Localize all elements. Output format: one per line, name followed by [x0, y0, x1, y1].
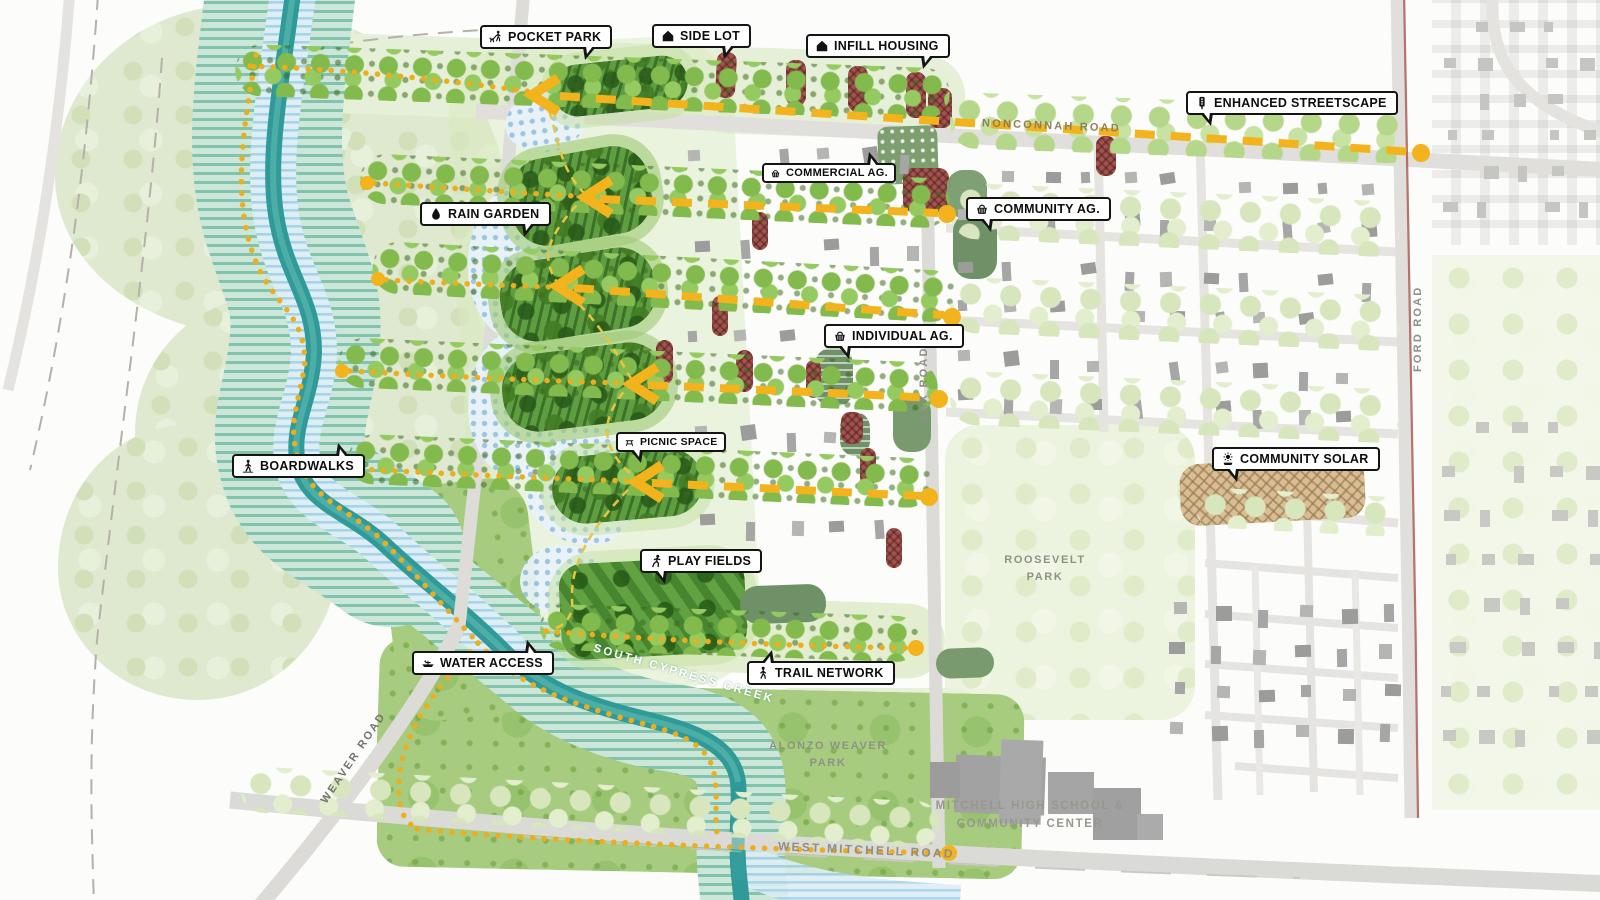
person-running-icon [649, 554, 663, 568]
callout-enhanced-streetscape: ENHANCED STREETSCAPE [1186, 91, 1398, 115]
basket-icon [975, 202, 989, 216]
person-walking-icon [756, 666, 770, 680]
callout-community-ag: COMMUNITY AG. [966, 197, 1111, 221]
callout-water-access: WATER ACCESS [412, 651, 554, 675]
callout-picnic-space: PICNIC SPACE [616, 432, 726, 452]
traffic-light-icon [1195, 96, 1209, 110]
basket-icon [833, 329, 847, 343]
basket-icon [770, 168, 781, 179]
dog-walk-icon [489, 30, 503, 44]
sun-icon [1221, 452, 1235, 466]
callout-boardwalks: BOARDWALKS [232, 454, 365, 478]
callout-trail-network: TRAIL NETWORK [747, 661, 895, 685]
droplet-icon [429, 207, 443, 221]
callouts-layer: POCKET PARK SIDE LOT INFILL HOUSING ENHA… [0, 0, 1600, 900]
callout-individual-ag: INDIVIDUAL AG. [824, 324, 964, 348]
callout-infill-housing: INFILL HOUSING [806, 34, 950, 58]
callout-side-lot: SIDE LOT [652, 24, 751, 48]
house-icon [815, 39, 829, 53]
callout-play-fields: PLAY FIELDS [640, 549, 762, 573]
callout-community-solar: COMMUNITY SOLAR [1212, 447, 1380, 471]
callout-commercial-ag: COMMERCIAL AG. [762, 163, 896, 183]
picnic-table-icon [624, 437, 635, 448]
master-plan-map: NONCONNAH ROAD SAX ROAD FORD ROAD WEAVER… [0, 0, 1600, 900]
person-walking-icon [241, 459, 255, 473]
boat-icon [421, 656, 435, 670]
callout-rain-garden: RAIN GARDEN [420, 202, 551, 226]
house-icon [661, 29, 675, 43]
callout-pocket-park: POCKET PARK [480, 25, 612, 49]
